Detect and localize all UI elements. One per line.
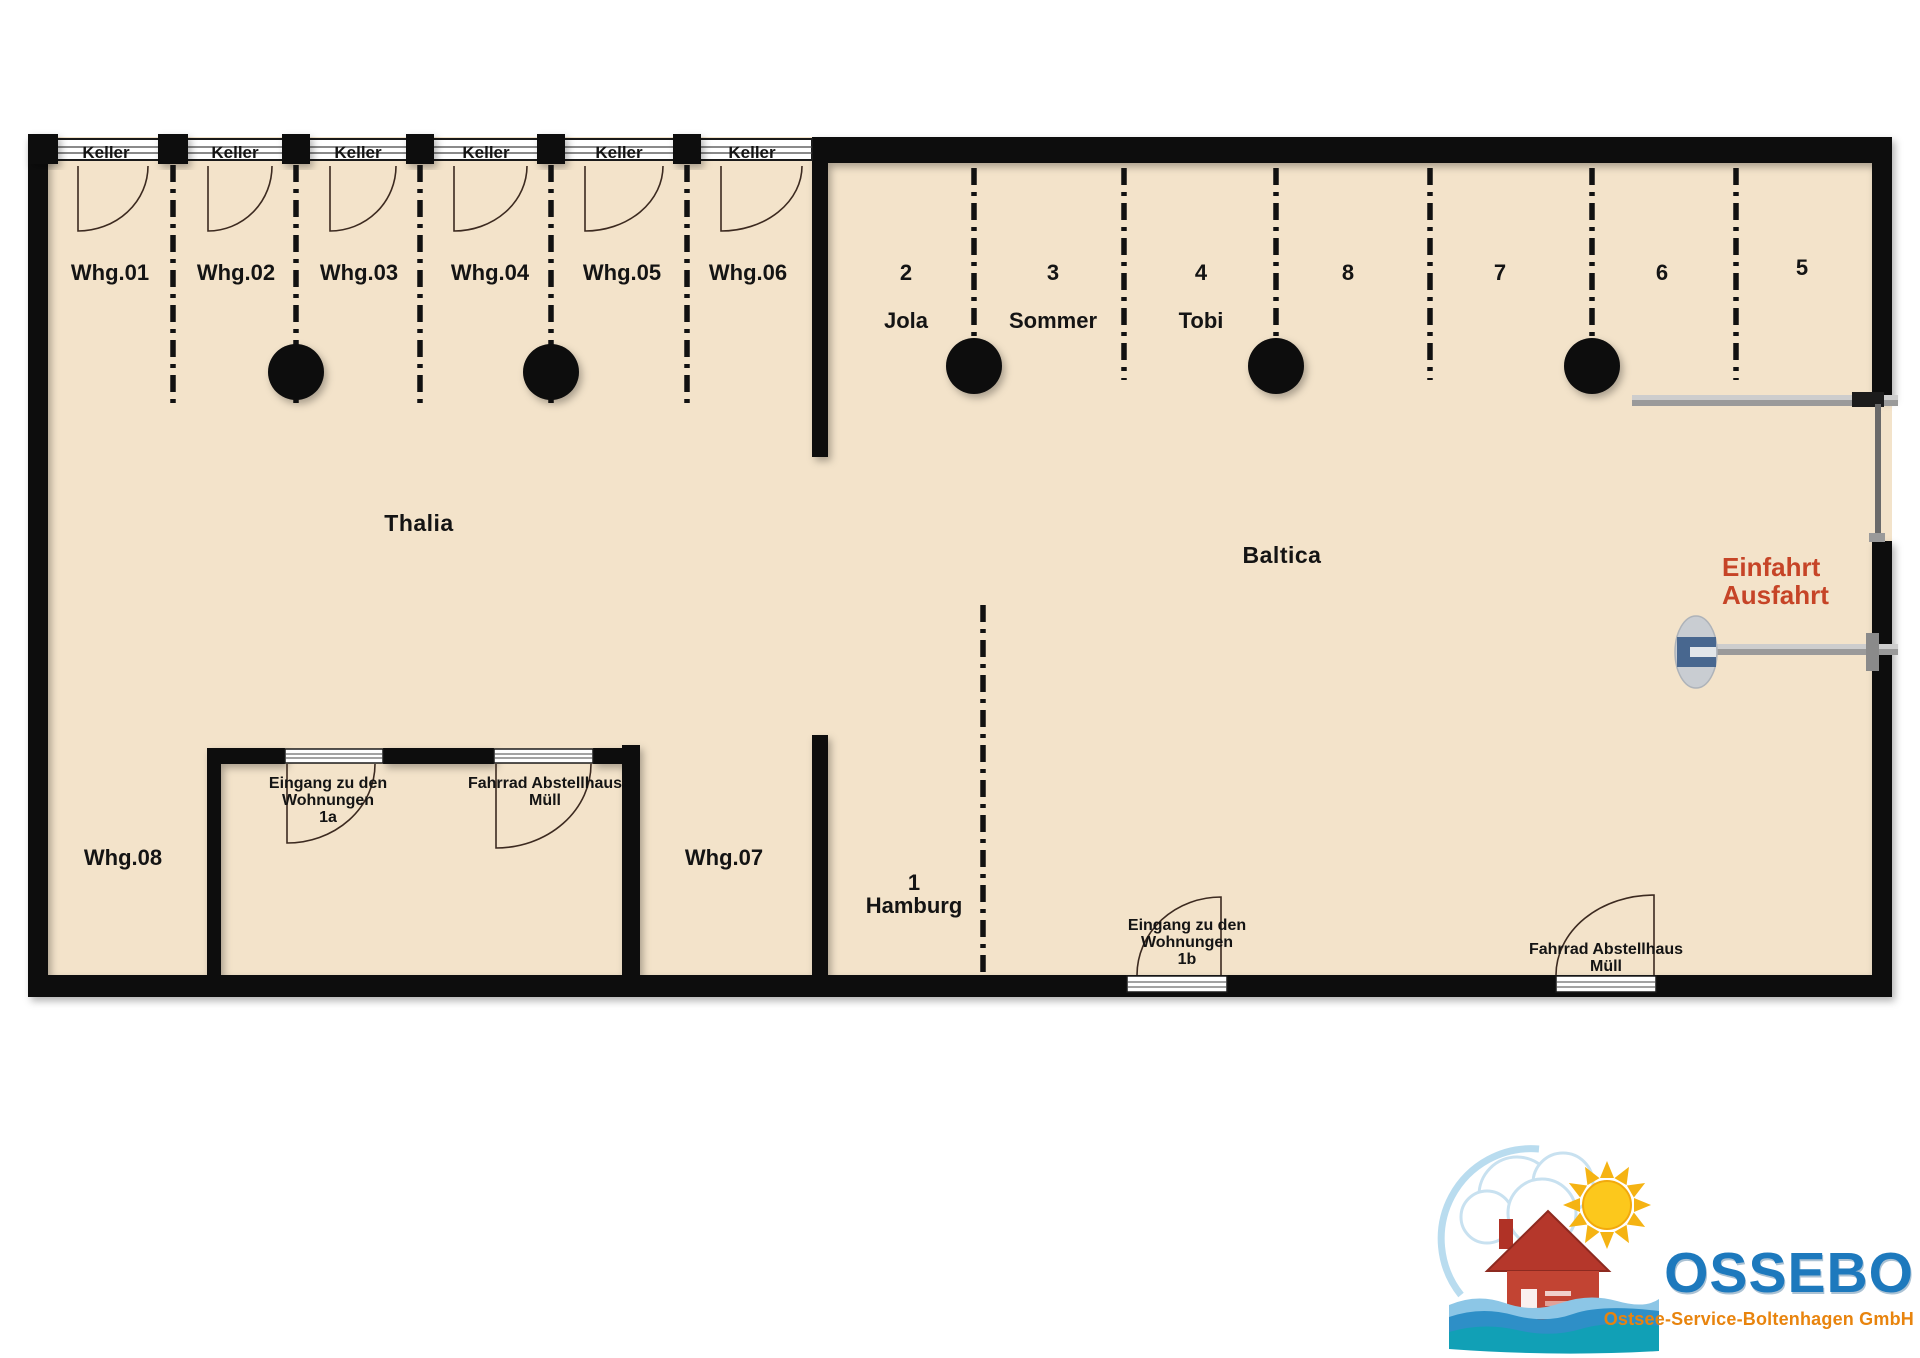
hall-name-thalia: Thalia — [384, 511, 453, 537]
wall-entrancehouse-top-c — [593, 748, 640, 764]
spot-number: 5 — [1796, 256, 1808, 280]
wall-divider-upper — [812, 163, 828, 457]
company-name: OSSEBO — [1604, 1243, 1914, 1303]
apartment-whg03: Whg.03 — [320, 261, 398, 286]
entry-exit-label: Einfahrt Ausfahrt — [1722, 553, 1829, 609]
apartment-whg06: Whg.06 — [709, 261, 787, 286]
floorplan-page: Keller Keller Keller Keller Keller Kelle… — [0, 0, 1920, 1358]
parking-spot-5: 5 — [1796, 232, 1808, 304]
spot-name: Tobi — [1179, 309, 1224, 333]
entrance-1a-label: Eingang zu den Wohnungen 1a — [269, 775, 387, 826]
apartment-whg05: Whg.05 — [583, 261, 661, 286]
spot-number: 7 — [1494, 261, 1506, 285]
keller-label-5: Keller — [595, 143, 642, 162]
spot-number: 4 — [1179, 261, 1224, 285]
wall-entrancehouse-top-b — [383, 748, 494, 764]
spot-name: Jola — [884, 309, 928, 333]
wall-right-upper — [1872, 137, 1892, 398]
apartment-whg01: Whg.01 — [71, 261, 149, 286]
keller-label-3: Keller — [334, 143, 381, 162]
parking-spot-4-tobi: 4 Tobi — [1179, 237, 1224, 357]
keller-label-2: Keller — [211, 143, 258, 162]
bike-house-left-label: Fahrrad Abstellhaus Müll — [468, 775, 622, 809]
wall-left — [28, 137, 48, 997]
bike-house-right-label: Fahrrad Abstellhaus Müll — [1529, 941, 1683, 975]
barrier-arm-cap — [1866, 633, 1879, 671]
spot-name: Hamburg — [866, 893, 963, 918]
parking-spot-7: 7 — [1494, 237, 1506, 309]
barrier-post-slot — [1690, 647, 1716, 657]
parking-spot-2-jola: 2 Jola — [884, 237, 928, 357]
entrance-1b-label: Eingang zu den Wohnungen 1b — [1128, 917, 1246, 968]
spot-number: 1 — [908, 870, 920, 895]
hall-name-baltica: Baltica — [1243, 543, 1322, 569]
company-logo-text: OSSEBO Ostsee-Service-Boltenhagen GmbH — [1604, 1243, 1914, 1330]
apartment-whg02: Whg.02 — [197, 261, 275, 286]
keller-label-6: Keller — [728, 143, 775, 162]
wall-top-right-section — [812, 137, 1892, 163]
parking-spot-3-sommer: 3 Sommer — [1009, 237, 1097, 357]
spot-number: 3 — [1009, 261, 1097, 285]
spot-number: 6 — [1656, 261, 1668, 285]
gate-leaf — [1875, 404, 1881, 536]
parking-spot-8: 8 — [1342, 237, 1354, 309]
wall-entrancehouse-top-a — [207, 748, 285, 764]
wall-divider-lower — [812, 735, 828, 975]
spot-number: 2 — [884, 261, 928, 285]
wall-right-lower — [1872, 541, 1892, 997]
spot-number: 8 — [1342, 261, 1354, 285]
parking-spot-6: 6 — [1656, 237, 1668, 309]
keller-label-1: Keller — [82, 143, 129, 162]
company-subtitle: Ostsee-Service-Boltenhagen GmbH — [1604, 1309, 1914, 1330]
parking-spot-1-hamburg: 1 Hamburg — [866, 848, 963, 917]
floorplan-drawing — [0, 0, 1920, 1358]
wall-entrancehouse-right — [622, 745, 640, 975]
keller-label-4: Keller — [462, 143, 509, 162]
gate-leaf-cap — [1869, 533, 1885, 542]
apartment-whg08: Whg.08 — [84, 846, 162, 871]
wall-entrancehouse-left — [207, 748, 221, 975]
spot-name: Sommer — [1009, 309, 1097, 333]
apartment-whg04: Whg.04 — [451, 261, 529, 286]
apartment-whg07: Whg.07 — [685, 846, 763, 871]
